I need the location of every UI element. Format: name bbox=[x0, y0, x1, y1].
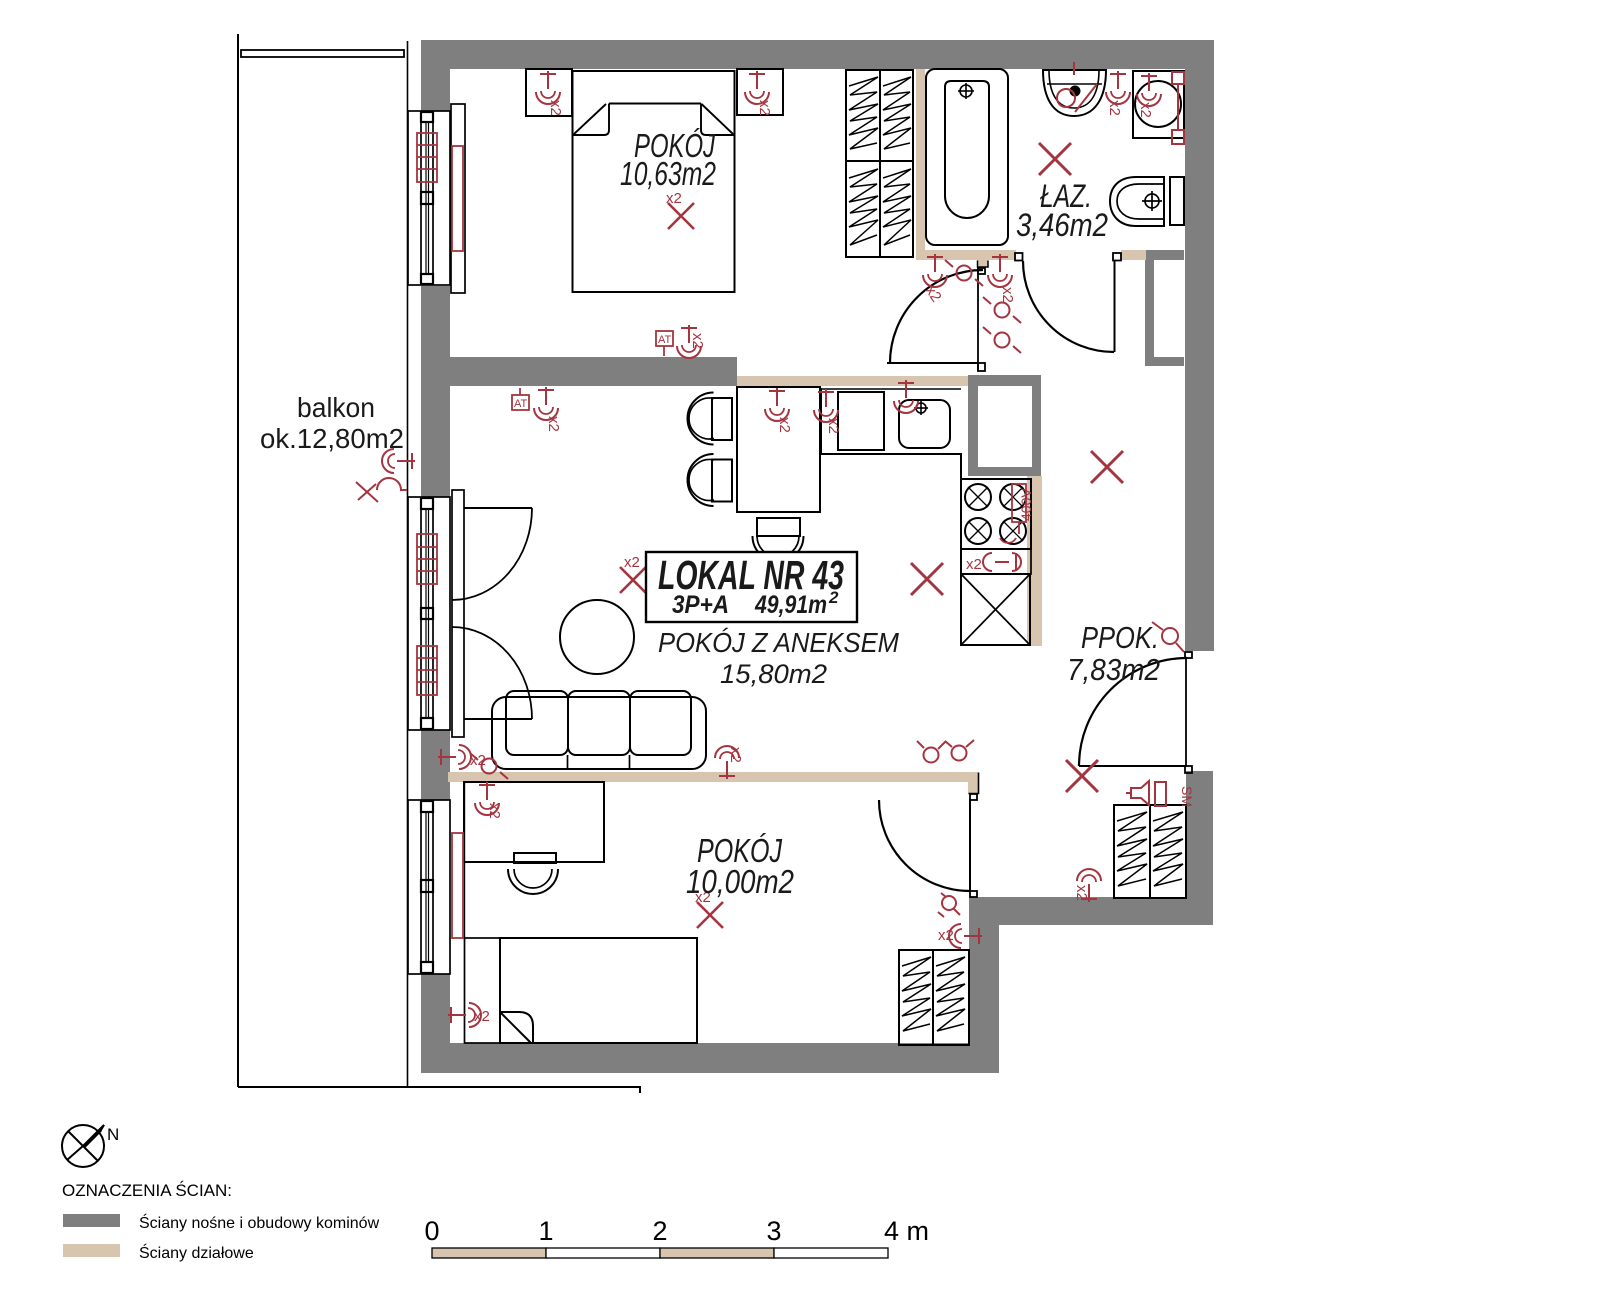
svg-text:x2: x2 bbox=[938, 927, 954, 944]
svg-text:x2: x2 bbox=[966, 556, 982, 573]
svg-text:x2: x2 bbox=[547, 100, 564, 116]
svg-text:Ściany nośne i obudowy kominów: Ściany nośne i obudowy kominów bbox=[139, 1213, 380, 1232]
svg-text:10,63m2: 10,63m2 bbox=[620, 155, 716, 192]
svg-text:ok.12,80m2: ok.12,80m2 bbox=[260, 423, 404, 454]
svg-text:10,00m2: 10,00m2 bbox=[686, 863, 794, 900]
svg-text:POKÓJ Z ANEKSEM: POKÓJ Z ANEKSEM bbox=[658, 627, 900, 658]
svg-text:3P+A: 3P+A bbox=[672, 591, 729, 619]
svg-text:x2: x2 bbox=[666, 190, 682, 207]
svg-text:PPOK.: PPOK. bbox=[1081, 620, 1159, 655]
svg-text:x2: x2 bbox=[1137, 102, 1154, 118]
svg-text:2: 2 bbox=[828, 588, 839, 607]
svg-text:x2: x2 bbox=[545, 416, 562, 432]
svg-text:7,83m2: 7,83m2 bbox=[1067, 652, 1160, 687]
svg-text:x2: x2 bbox=[727, 747, 744, 763]
svg-text:3: 3 bbox=[766, 1216, 781, 1246]
svg-text:OZNACZENIA ŚCIAN:: OZNACZENIA ŚCIAN: bbox=[62, 1181, 232, 1200]
svg-text:3,46m2: 3,46m2 bbox=[1016, 207, 1108, 243]
svg-text:x2: x2 bbox=[756, 100, 773, 116]
svg-text:4 m: 4 m bbox=[884, 1216, 929, 1246]
svg-text:400V: 400V bbox=[1018, 488, 1034, 521]
svg-text:AT: AT bbox=[514, 398, 528, 410]
svg-text:49,91m: 49,91m bbox=[754, 591, 827, 619]
svg-text:balkon: balkon bbox=[297, 392, 375, 423]
svg-text:x2: x2 bbox=[825, 418, 842, 434]
svg-text:2: 2 bbox=[652, 1216, 667, 1246]
svg-text:Ściany działowe: Ściany działowe bbox=[139, 1243, 254, 1262]
svg-text:AT: AT bbox=[658, 334, 672, 346]
svg-text:15,80m2: 15,80m2 bbox=[720, 659, 827, 689]
svg-text:x2: x2 bbox=[474, 1008, 490, 1025]
svg-text:1: 1 bbox=[538, 1216, 553, 1246]
svg-text:x2: x2 bbox=[486, 803, 503, 819]
svg-text:x2: x2 bbox=[1106, 100, 1123, 116]
svg-text:x2: x2 bbox=[999, 287, 1016, 303]
svg-text:x2: x2 bbox=[689, 333, 706, 349]
svg-text:x2: x2 bbox=[624, 554, 640, 571]
svg-text:0: 0 bbox=[424, 1216, 439, 1246]
svg-text:x2: x2 bbox=[776, 417, 793, 433]
svg-text:x2: x2 bbox=[1073, 885, 1090, 901]
svg-text:N: N bbox=[107, 1125, 119, 1144]
svg-text:SM: SM bbox=[1179, 786, 1195, 807]
